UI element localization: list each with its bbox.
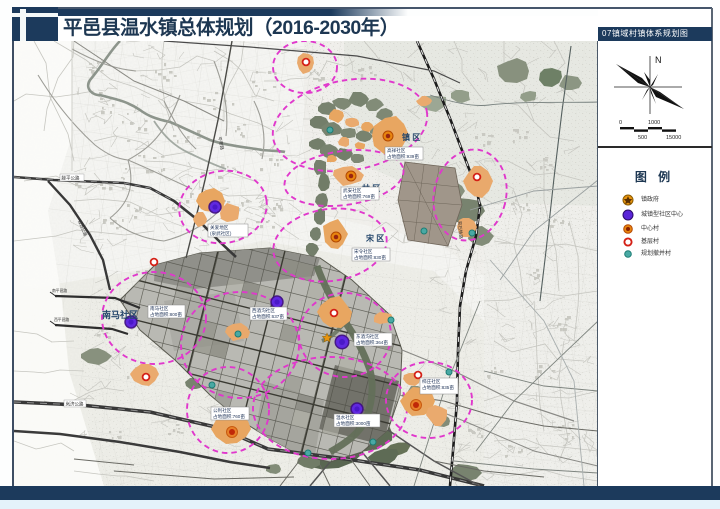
svg-text:占地面积:364亩: 占地面积:364亩 <box>356 339 388 346</box>
svg-text:占地面积:769亩: 占地面积:769亩 <box>343 193 375 200</box>
svg-text:占地面积:939亩: 占地面积:939亩 <box>387 153 419 160</box>
svg-text:岚济公路: 岚济公路 <box>66 401 84 408</box>
svg-text:占地面积:3000亩: 占地面积:3000亩 <box>336 420 371 427</box>
svg-text:镇 区: 镇 区 <box>402 132 420 142</box>
svg-text:N: N <box>655 55 662 65</box>
svg-text:500: 500 <box>638 135 647 141</box>
svg-text:0: 0 <box>619 120 622 126</box>
svg-text:占地面积:760亩: 占地面积:760亩 <box>213 413 245 420</box>
svg-text:滕平公路: 滕平公路 <box>62 175 80 182</box>
svg-text:南马社区: 南马社区 <box>102 309 138 320</box>
svg-text:15000: 15000 <box>666 135 681 141</box>
svg-text:占地面积:637亩: 占地面积:637亩 <box>252 313 284 320</box>
svg-text:占地面积:830亩: 占地面积:830亩 <box>354 254 386 261</box>
svg-text:(泉武社区): (泉武社区) <box>210 230 232 237</box>
svg-text:西平邑路: 西平邑路 <box>54 317 69 322</box>
svg-text:占地面积:835亩: 占地面积:835亩 <box>422 384 454 391</box>
svg-text:占地面积:800亩: 占地面积:800亩 <box>150 311 182 318</box>
svg-text:宋 区: 宋 区 <box>365 233 384 243</box>
svg-text:1000: 1000 <box>648 120 660 126</box>
svg-text:南平邑路: 南平邑路 <box>52 288 67 293</box>
